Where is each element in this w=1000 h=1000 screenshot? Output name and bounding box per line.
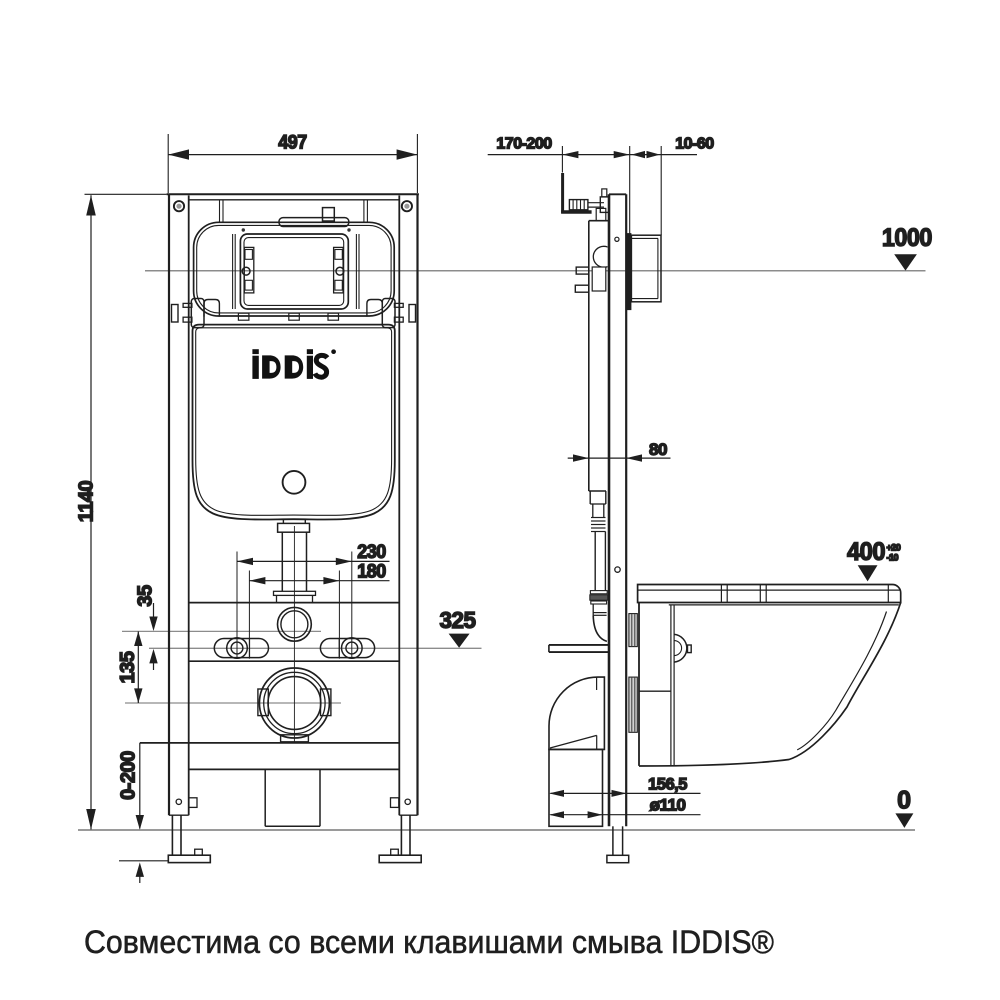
svg-text:135: 135 [117,651,139,683]
svg-text:0: 0 [897,787,910,815]
svg-text:1000: 1000 [882,224,932,252]
svg-text:ø110: ø110 [650,796,686,815]
svg-text:497: 497 [278,132,307,154]
svg-text:400: 400 [847,538,885,566]
svg-text:Совместима со всеми клавишами: Совместима со всеми клавишами смыва IDDI… [84,924,774,960]
svg-text:1140: 1140 [76,480,98,522]
svg-text:+20: +20 [887,543,901,553]
svg-text:325: 325 [440,607,477,633]
svg-text:0-200: 0-200 [118,751,140,800]
svg-text:230: 230 [357,542,386,563]
svg-text:170-200: 170-200 [496,136,552,153]
svg-text:10-60: 10-60 [675,136,714,153]
svg-text:156,5: 156,5 [648,774,687,793]
svg-text:35: 35 [135,585,157,607]
svg-text:80: 80 [649,440,667,459]
svg-text:-10: -10 [887,553,899,563]
svg-text:180: 180 [357,561,386,582]
